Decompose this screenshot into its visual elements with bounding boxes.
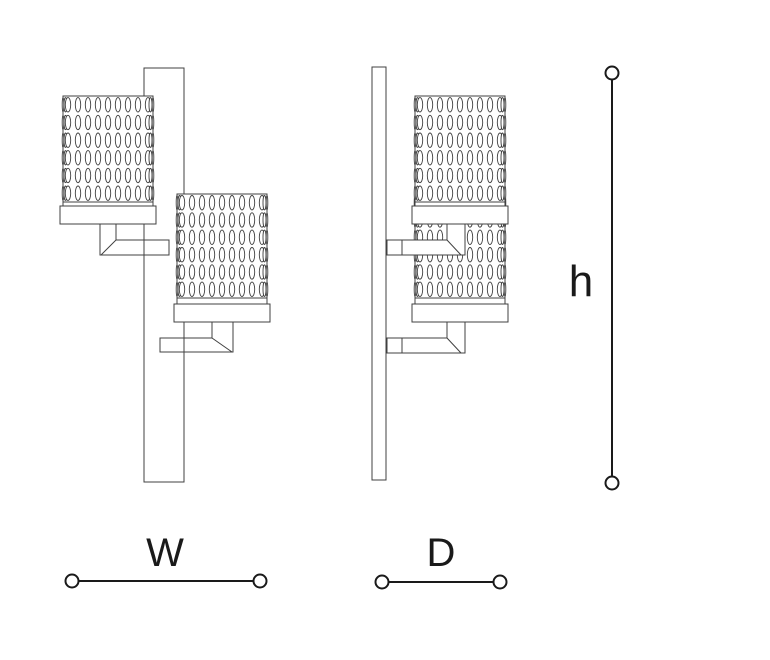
perforation-hole [149, 115, 152, 129]
perforation-hole [229, 248, 234, 262]
perforation-hole [501, 186, 504, 200]
perforation-hole [447, 168, 452, 182]
perforation-hole [427, 151, 432, 165]
perforation-hole [105, 151, 110, 165]
perforation-hole [152, 151, 154, 165]
perforation-hole [135, 115, 140, 129]
perforation-hole [209, 282, 214, 296]
perforation-hole [501, 98, 504, 112]
perforation-hole [199, 282, 204, 296]
perforation-hole [487, 98, 492, 112]
perforation-hole [447, 151, 452, 165]
perforation-hole [179, 213, 184, 227]
perforation-hole [417, 115, 422, 129]
perforation-hole [266, 213, 268, 227]
perforation-hole [209, 196, 214, 210]
perforation-hole [427, 133, 432, 147]
perforation-hole [447, 265, 452, 279]
perforation-hole [189, 230, 194, 244]
perforation-hole [219, 282, 224, 296]
perforation-hole [179, 265, 184, 279]
perforation-hole [457, 282, 462, 296]
front-lower-shade-band [174, 304, 270, 322]
perforation-hole [487, 230, 492, 244]
perforation-hole [65, 168, 70, 182]
perforation-hole [447, 115, 452, 129]
perforation-hole [266, 230, 268, 244]
perforation-hole [266, 265, 268, 279]
perforation-hole [125, 133, 130, 147]
perforation-hole [427, 186, 432, 200]
perforation-hole [437, 133, 442, 147]
depth-dimension-right-endpoint [494, 576, 507, 589]
perforation-hole [189, 196, 194, 210]
perforation-hole [417, 98, 422, 112]
perforation-hole [263, 230, 266, 244]
side-lower-shade-band [412, 304, 508, 322]
perforation-hole [219, 248, 224, 262]
perforation-hole [467, 186, 472, 200]
perforation-hole [149, 151, 152, 165]
perforation-hole [135, 98, 140, 112]
perforation-hole [65, 151, 70, 165]
perforation-hole [135, 186, 140, 200]
side-upper-shade-band [412, 206, 508, 224]
perforation-hole [219, 196, 224, 210]
perforation-hole [229, 213, 234, 227]
perforation-hole [125, 98, 130, 112]
perforation-hole [447, 282, 452, 296]
perforation-hole [457, 151, 462, 165]
perforation-hole [457, 265, 462, 279]
perforation-hole [477, 248, 482, 262]
perforation-hole [85, 151, 90, 165]
perforation-hole [447, 98, 452, 112]
perforation-hole [457, 168, 462, 182]
perforation-hole [239, 230, 244, 244]
perforation-hole [501, 133, 504, 147]
side-view [372, 67, 508, 480]
perforation-hole [263, 248, 266, 262]
perforation-hole [189, 248, 194, 262]
perforation-hole [504, 248, 506, 262]
perforation-hole [199, 248, 204, 262]
perforation-hole [135, 151, 140, 165]
perforation-hole [504, 186, 506, 200]
perforation-hole [239, 196, 244, 210]
perforation-hole [105, 168, 110, 182]
perforation-hole [487, 151, 492, 165]
drawing-svg: h W D [0, 0, 770, 660]
perforation-hole [199, 230, 204, 244]
perforation-hole [427, 265, 432, 279]
perforation-hole [65, 186, 70, 200]
perforation-hole [504, 168, 506, 182]
front-upper-shade-rim [63, 202, 153, 206]
perforation-hole [417, 282, 422, 296]
perforation-hole [266, 196, 268, 210]
front-lower-bracket-chamfer [212, 338, 232, 352]
perforation-hole [199, 213, 204, 227]
perforation-hole [249, 230, 254, 244]
perforation-hole [487, 115, 492, 129]
perforation-hole [504, 230, 506, 244]
depth-dimension: D [376, 531, 507, 589]
perforation-hole [477, 230, 482, 244]
perforation-hole [504, 115, 506, 129]
depth-label: D [427, 531, 456, 575]
perforation-hole [417, 168, 422, 182]
perforation-hole [467, 133, 472, 147]
perforation-hole [239, 282, 244, 296]
front-lower-shade-perforations [176, 194, 268, 298]
side-lower-shade-rim [415, 298, 505, 304]
perforation-hole [135, 133, 140, 147]
perforation-hole [95, 186, 100, 200]
perforation-hole [457, 98, 462, 112]
perforation-hole [219, 265, 224, 279]
side-lower-bracket-arm [387, 322, 465, 353]
front-upper-shade-band [60, 206, 156, 224]
perforation-hole [437, 151, 442, 165]
perforation-hole [477, 151, 482, 165]
perforation-hole [504, 98, 506, 112]
perforation-hole [125, 186, 130, 200]
perforation-hole [447, 186, 452, 200]
perforation-hole [75, 186, 80, 200]
perforation-hole [467, 115, 472, 129]
perforation-hole [427, 168, 432, 182]
perforation-hole [115, 115, 120, 129]
side-upper-lamp [412, 96, 508, 224]
perforation-hole [209, 230, 214, 244]
perforation-hole [487, 282, 492, 296]
perforation-hole [487, 186, 492, 200]
perforation-hole [263, 196, 266, 210]
perforation-hole [189, 282, 194, 296]
perforation-hole [501, 265, 504, 279]
perforation-hole [263, 213, 266, 227]
perforation-hole [95, 115, 100, 129]
perforation-hole [95, 168, 100, 182]
perforation-hole [85, 133, 90, 147]
perforation-hole [219, 230, 224, 244]
perforation-hole [95, 133, 100, 147]
perforation-hole [477, 282, 482, 296]
perforation-hole [437, 282, 442, 296]
perforation-hole [437, 115, 442, 129]
perforation-hole [501, 151, 504, 165]
perforation-hole [504, 133, 506, 147]
front-view [60, 68, 270, 482]
perforation-hole [125, 168, 130, 182]
perforation-hole [427, 98, 432, 112]
perforation-hole [467, 151, 472, 165]
perforation-hole [457, 133, 462, 147]
perforation-hole [239, 248, 244, 262]
perforation-hole [152, 98, 154, 112]
perforation-hole [199, 265, 204, 279]
height-label: h [569, 257, 593, 306]
perforation-hole [504, 151, 506, 165]
width-dimension-right-endpoint [254, 575, 267, 588]
side-wall-plate [372, 67, 386, 480]
side-upper-shade-rim [415, 202, 505, 206]
perforation-hole [85, 98, 90, 112]
perforation-hole [179, 282, 184, 296]
perforation-hole [209, 213, 214, 227]
perforation-hole [417, 186, 422, 200]
perforation-hole [427, 115, 432, 129]
perforation-hole [115, 98, 120, 112]
perforation-hole [149, 168, 152, 182]
perforation-hole [115, 133, 120, 147]
perforation-hole [179, 196, 184, 210]
perforation-hole [229, 265, 234, 279]
perforation-hole [249, 248, 254, 262]
perforation-hole [229, 282, 234, 296]
perforation-hole [229, 230, 234, 244]
perforation-hole [437, 265, 442, 279]
width-label: W [146, 531, 184, 575]
perforation-hole [501, 168, 504, 182]
perforation-hole [467, 168, 472, 182]
perforation-hole [477, 186, 482, 200]
perforation-hole [199, 196, 204, 210]
perforation-hole [152, 186, 154, 200]
side-upper-shade-perforations [414, 96, 506, 202]
perforation-hole [125, 115, 130, 129]
perforation-hole [75, 151, 80, 165]
perforation-hole [105, 133, 110, 147]
perforation-hole [179, 248, 184, 262]
perforation-hole [115, 168, 120, 182]
perforation-hole [105, 115, 110, 129]
perforation-hole [501, 248, 504, 262]
perforation-hole [263, 282, 266, 296]
perforation-hole [417, 265, 422, 279]
perforation-hole [135, 168, 140, 182]
perforation-hole [487, 168, 492, 182]
perforation-hole [149, 186, 152, 200]
perforation-hole [75, 98, 80, 112]
perforation-hole [487, 265, 492, 279]
perforation-hole [504, 265, 506, 279]
perforation-hole [266, 248, 268, 262]
perforation-hole [501, 115, 504, 129]
perforation-hole [447, 133, 452, 147]
height-dimension-top-endpoint [606, 67, 619, 80]
perforation-hole [189, 265, 194, 279]
perforation-hole [477, 133, 482, 147]
perforation-hole [95, 98, 100, 112]
perforation-hole [149, 98, 152, 112]
perforation-hole [501, 282, 504, 296]
perforation-hole [75, 115, 80, 129]
perforation-hole [427, 282, 432, 296]
perforation-hole [152, 168, 154, 182]
perforation-hole [437, 98, 442, 112]
perforation-hole [105, 186, 110, 200]
perforation-hole [65, 115, 70, 129]
perforation-hole [487, 133, 492, 147]
perforation-hole [85, 186, 90, 200]
perforation-hole [457, 115, 462, 129]
perforation-hole [467, 248, 472, 262]
perforation-hole [189, 213, 194, 227]
perforation-hole [266, 282, 268, 296]
perforation-hole [487, 248, 492, 262]
perforation-hole [115, 186, 120, 200]
perforation-hole [149, 133, 152, 147]
perforation-hole [239, 265, 244, 279]
perforation-hole [467, 282, 472, 296]
perforation-hole [249, 213, 254, 227]
perforation-hole [477, 168, 482, 182]
side-lower-bracket [387, 322, 465, 353]
perforation-hole [249, 282, 254, 296]
front-upper-shade-perforations [62, 96, 154, 202]
height-dimension-bottom-endpoint [606, 477, 619, 490]
perforation-hole [85, 115, 90, 129]
perforation-hole [179, 230, 184, 244]
depth-dimension-left-endpoint [376, 576, 389, 589]
perforation-hole [467, 265, 472, 279]
perforation-hole [209, 265, 214, 279]
perforation-hole [239, 213, 244, 227]
width-dimension-left-endpoint [66, 575, 79, 588]
perforation-hole [477, 98, 482, 112]
perforation-hole [477, 115, 482, 129]
perforation-hole [249, 265, 254, 279]
front-lower-shade-rim [177, 298, 267, 304]
perforation-hole [504, 282, 506, 296]
perforation-hole [65, 133, 70, 147]
perforation-hole [437, 168, 442, 182]
width-dimension: W [66, 531, 267, 588]
perforation-hole [249, 196, 254, 210]
sconce-dimension-drawing: h W D [0, 0, 770, 660]
perforation-hole [209, 248, 214, 262]
perforation-hole [152, 133, 154, 147]
perforation-hole [417, 151, 422, 165]
perforation-hole [105, 98, 110, 112]
perforation-hole [477, 265, 482, 279]
perforation-hole [263, 265, 266, 279]
front-upper-bracket-chamfer [101, 240, 116, 255]
perforation-hole [219, 213, 224, 227]
perforation-hole [467, 230, 472, 244]
perforation-hole [75, 133, 80, 147]
perforation-hole [437, 186, 442, 200]
perforation-hole [65, 98, 70, 112]
perforation-hole [115, 151, 120, 165]
perforation-hole [417, 133, 422, 147]
perforation-hole [152, 115, 154, 129]
perforation-hole [457, 186, 462, 200]
perforation-hole [125, 151, 130, 165]
perforation-hole [467, 98, 472, 112]
perforation-hole [95, 151, 100, 165]
height-dimension: h [569, 67, 619, 490]
perforation-hole [229, 196, 234, 210]
perforation-hole [75, 168, 80, 182]
perforation-hole [501, 230, 504, 244]
perforation-hole [85, 168, 90, 182]
